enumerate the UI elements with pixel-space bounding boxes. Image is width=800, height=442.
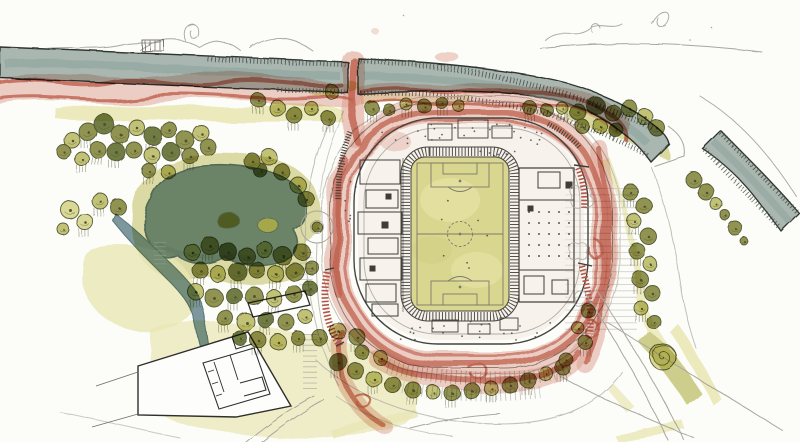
tree	[286, 286, 302, 302]
column-dot	[486, 235, 488, 237]
tree	[728, 221, 742, 235]
tree	[464, 383, 480, 399]
column-dot	[443, 255, 445, 257]
column-dot	[463, 135, 465, 137]
column-dot	[349, 218, 351, 220]
column-dot	[496, 124, 498, 126]
column-dot	[558, 222, 560, 224]
column-dot	[538, 211, 540, 213]
tree	[244, 153, 260, 169]
column-dot	[528, 211, 530, 213]
column-dot	[481, 324, 483, 326]
column-dot	[548, 244, 550, 246]
tree	[269, 100, 285, 116]
tree	[61, 201, 79, 219]
column-dot	[497, 154, 499, 156]
site-plan-canvas	[0, 0, 800, 442]
tree	[383, 104, 395, 116]
tree	[559, 353, 573, 367]
column-dot	[548, 211, 550, 213]
column-dot	[439, 137, 441, 139]
column-dot	[534, 336, 536, 338]
tree	[740, 237, 748, 245]
island-light	[258, 217, 278, 233]
column-dot	[548, 255, 550, 257]
tree	[261, 149, 277, 165]
tree	[609, 123, 623, 137]
tree	[365, 101, 379, 122]
column-dot	[514, 151, 516, 153]
tree	[312, 330, 328, 346]
column-dot	[461, 335, 463, 337]
column-dot	[528, 222, 530, 224]
column-dot	[528, 255, 530, 257]
column-dot	[447, 200, 449, 202]
column-dot	[417, 130, 419, 132]
tree	[305, 261, 319, 275]
column-dot	[558, 211, 560, 213]
tree	[184, 244, 200, 260]
column-dot	[536, 132, 538, 134]
column-dot	[519, 325, 521, 327]
column-dot	[479, 337, 481, 339]
column-dot	[548, 233, 550, 235]
column-dot	[530, 139, 532, 141]
tree	[502, 377, 518, 393]
column-dot	[549, 322, 551, 324]
column-dot	[381, 132, 383, 134]
tree	[572, 322, 584, 334]
tree	[325, 85, 339, 99]
column-dot	[410, 331, 412, 333]
column-dot	[538, 244, 540, 246]
tree	[686, 172, 702, 188]
column-dot	[474, 130, 476, 132]
column-dot	[414, 339, 416, 341]
column-dot	[489, 129, 491, 131]
column-dot	[548, 222, 550, 224]
spiral-tree	[650, 344, 676, 370]
tree	[94, 114, 114, 134]
tree	[303, 281, 317, 295]
tree	[219, 243, 237, 261]
tree	[161, 165, 175, 179]
column-dot	[509, 124, 511, 126]
column-dot	[477, 220, 479, 222]
tree	[229, 263, 247, 288]
column-dot	[520, 137, 522, 139]
tree	[286, 107, 302, 130]
column-dot	[511, 332, 513, 334]
tree	[575, 119, 589, 133]
column-dot	[479, 151, 481, 153]
pitch-bowl	[401, 147, 519, 321]
column-dot	[568, 222, 570, 224]
tree	[330, 323, 346, 339]
column-dot	[431, 139, 433, 141]
tree	[426, 385, 440, 399]
tree	[644, 285, 660, 301]
column-dot	[538, 255, 540, 257]
column-dot	[539, 139, 541, 141]
tree	[298, 309, 312, 323]
tree	[710, 198, 722, 210]
tree	[274, 164, 290, 180]
tree	[270, 334, 286, 350]
column-dot	[350, 181, 352, 183]
column-dot	[524, 127, 526, 129]
column-dot	[503, 333, 505, 335]
column-dot	[489, 152, 491, 154]
column-dot	[442, 332, 444, 334]
tree	[162, 143, 180, 161]
column-dot	[433, 128, 435, 130]
tree	[257, 242, 273, 258]
tree	[643, 257, 657, 271]
column-dot	[355, 186, 357, 188]
column-dot	[536, 332, 538, 334]
column-dot	[424, 136, 426, 138]
tree	[570, 104, 586, 120]
tree	[245, 287, 263, 305]
tree	[444, 385, 460, 408]
tree	[649, 120, 665, 136]
tree	[374, 351, 388, 365]
column-dot	[528, 244, 530, 246]
column-dot	[488, 323, 490, 325]
column-dot	[528, 233, 530, 235]
column-dot	[348, 220, 350, 222]
tree	[75, 152, 89, 173]
tree	[453, 100, 465, 112]
tree	[233, 331, 247, 345]
tree	[92, 193, 108, 216]
column-dot	[443, 325, 445, 327]
tree	[627, 214, 641, 235]
tree	[193, 125, 209, 141]
column-dot	[411, 327, 413, 329]
column-dot	[466, 262, 468, 264]
tree	[640, 228, 656, 244]
tree	[298, 191, 314, 207]
tree	[636, 198, 652, 214]
tree	[210, 266, 226, 282]
column-dot	[493, 155, 495, 157]
column-dot	[345, 210, 347, 212]
column-dot	[538, 233, 540, 235]
column-dot	[506, 153, 508, 155]
column-dot	[479, 331, 481, 333]
tree	[286, 263, 304, 281]
tree	[321, 111, 335, 132]
column-dot	[470, 321, 472, 323]
column-dot	[541, 133, 543, 135]
column-dot	[454, 127, 456, 129]
tree	[539, 367, 553, 381]
column-dot	[558, 244, 560, 246]
column-dot	[558, 255, 560, 257]
column-dot	[395, 139, 397, 141]
tree	[417, 99, 431, 113]
tree	[605, 105, 621, 121]
tree	[161, 122, 177, 138]
tree	[587, 97, 605, 115]
bottom-strip-c	[610, 386, 636, 414]
tree	[237, 313, 255, 331]
tree	[226, 288, 242, 311]
tree	[268, 266, 284, 289]
column-dot	[432, 328, 434, 330]
tree	[634, 301, 648, 322]
column-dot	[349, 215, 351, 217]
column-dot	[430, 124, 432, 126]
tree	[355, 345, 369, 359]
tree	[249, 262, 265, 278]
column-dot	[515, 339, 517, 341]
tree	[385, 377, 401, 393]
tree	[200, 139, 216, 155]
column-dot	[441, 134, 443, 136]
column-dot	[419, 327, 421, 329]
column-dot	[413, 332, 415, 334]
column-dot	[407, 143, 409, 145]
tree	[720, 210, 730, 220]
column-dot	[407, 138, 409, 140]
column-dot	[568, 211, 570, 213]
column-dot	[558, 233, 560, 235]
tree	[593, 119, 607, 133]
column-dot	[538, 222, 540, 224]
column-dot	[344, 200, 346, 202]
tree	[621, 100, 637, 116]
column-dot	[513, 131, 515, 133]
column-dot	[400, 338, 402, 340]
tree	[348, 363, 364, 379]
tree	[541, 104, 553, 116]
tree	[581, 304, 595, 318]
column-dot	[472, 127, 474, 129]
tree	[278, 314, 294, 330]
tree	[57, 223, 69, 235]
tree	[305, 102, 319, 116]
tree	[647, 315, 661, 329]
tree	[698, 184, 714, 200]
column-dot	[536, 143, 538, 145]
tree	[77, 214, 93, 237]
site-plan-illustration	[0, 0, 800, 442]
tree	[57, 145, 71, 159]
tree	[110, 199, 126, 215]
column-dot	[568, 233, 570, 235]
tree	[290, 177, 306, 193]
tree	[192, 262, 208, 285]
tree	[107, 143, 125, 168]
island-dark	[218, 212, 239, 229]
tree	[129, 120, 145, 136]
tree	[205, 289, 223, 307]
tree	[126, 142, 142, 158]
column-dot	[468, 267, 470, 269]
tree	[294, 244, 310, 260]
column-dot	[441, 219, 443, 221]
tree	[90, 142, 106, 165]
tree	[312, 222, 322, 232]
